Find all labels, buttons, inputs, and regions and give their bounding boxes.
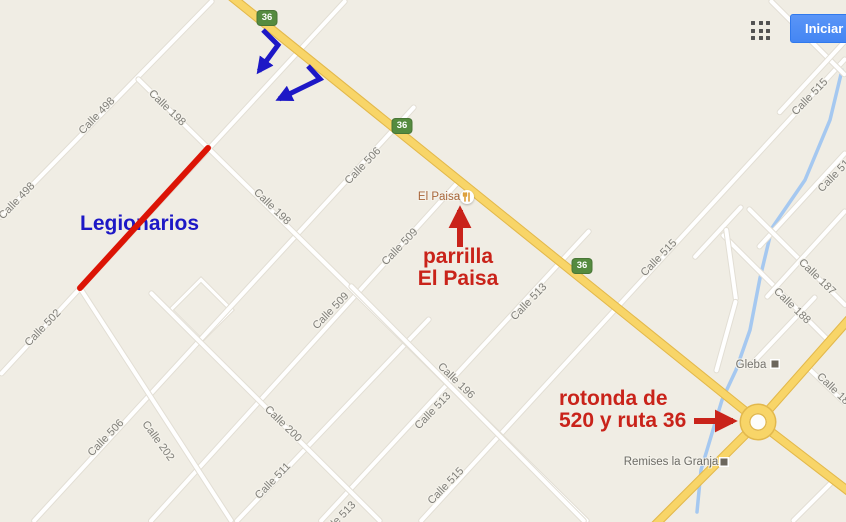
signin-button[interactable]: Iniciar [790,14,846,43]
poi-marker-gleba [772,361,779,368]
poi-marker-remises-la-granja [721,459,728,466]
poi-label-gleba: Gleba [736,359,767,371]
map-screenshot: Calle 498Calle 498Calle 502Calle 506Call… [0,0,846,522]
parrilla-el-paisa-annotation: parrilla El Paisa [418,246,499,290]
restaurant-icon [460,190,474,204]
rotonda-line-1: rotonda de [559,388,686,410]
poi-label-el-paisa: El Paisa [418,191,460,203]
legionarios-annotation: Legionarios [80,213,199,235]
apps-grid-icon[interactable] [751,21,770,40]
rotonda-annotation: rotonda de 520 y ruta 36 [559,388,686,432]
parrilla-line-2: El Paisa [418,268,499,290]
parrilla-line-1: parrilla [418,246,499,268]
rotonda-line-2: 520 y ruta 36 [559,410,686,432]
poi-label-remises-la-granja: Remises la Granja [624,456,719,468]
